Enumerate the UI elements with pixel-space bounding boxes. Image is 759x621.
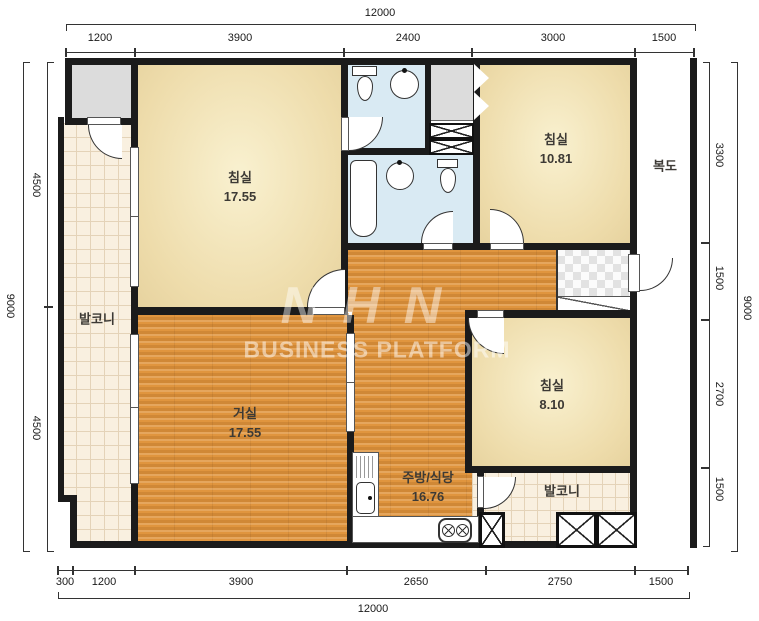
dim-top-seg-4: 1500 bbox=[652, 32, 676, 44]
dim-line-top-segments bbox=[66, 52, 694, 53]
door-frame-entry bbox=[628, 254, 640, 292]
dim-left-total: 9000 bbox=[4, 294, 16, 318]
tick bbox=[57, 566, 59, 575]
dim-right-total: 9000 bbox=[741, 296, 753, 320]
tick bbox=[471, 48, 473, 57]
storage-room bbox=[68, 62, 134, 120]
room-area: 10.81 bbox=[540, 150, 573, 169]
dim-top-seg-2: 2400 bbox=[396, 32, 420, 44]
wall-bedroom3-bottom bbox=[465, 466, 637, 473]
door-frame-storage-balcony bbox=[87, 117, 121, 125]
faucet-bath2 bbox=[397, 160, 402, 165]
watermark-subtitle: BUSINESS PLATFORM bbox=[243, 337, 510, 364]
dim-top-seg-3: 3000 bbox=[541, 32, 565, 44]
room-name: 침실 bbox=[224, 169, 257, 188]
stove-burner-left bbox=[442, 524, 455, 537]
window-bedroom1-b bbox=[130, 216, 139, 287]
bathtub-bath2 bbox=[350, 160, 377, 237]
kitchen-sink-drain bbox=[368, 496, 372, 500]
dim-top-seg-0: 1200 bbox=[88, 32, 112, 44]
label-living-room: 거실 17.55 bbox=[229, 405, 262, 443]
tick bbox=[701, 467, 710, 469]
label-bedroom-2: 침실 10.81 bbox=[540, 131, 573, 169]
label-bedroom-master: 침실 17.55 bbox=[224, 169, 257, 207]
room-name: 주방/식당 bbox=[402, 469, 453, 488]
tick bbox=[65, 48, 67, 57]
tick bbox=[346, 566, 348, 575]
tick bbox=[687, 566, 689, 575]
dim-top-total: 12000 bbox=[365, 7, 396, 19]
dim-line-top-total bbox=[66, 24, 696, 31]
label-balcony-left: 발코니 bbox=[79, 311, 115, 330]
tick bbox=[134, 566, 136, 575]
door-frame-bedroom2 bbox=[490, 243, 524, 250]
tick bbox=[701, 242, 710, 244]
room-area: 8.10 bbox=[539, 396, 564, 415]
window-living-b bbox=[130, 407, 139, 484]
wall-bedroom3-left bbox=[465, 310, 472, 473]
dim-line-bottom-total bbox=[58, 592, 690, 599]
room-name: 발코니 bbox=[544, 483, 580, 502]
wall-balcony-outer bbox=[58, 117, 64, 502]
room-name: 거실 bbox=[229, 405, 262, 424]
wall-kitchen-balcony-a bbox=[477, 466, 484, 476]
door-frame-bedroom3 bbox=[477, 310, 504, 318]
tick bbox=[634, 566, 636, 575]
label-kitchen: 주방/식당 16.76 bbox=[402, 469, 453, 507]
duct-box-a bbox=[429, 123, 474, 139]
room-area: 16.76 bbox=[402, 488, 453, 507]
wall-top bbox=[65, 58, 637, 65]
room-name: 발코니 bbox=[79, 311, 115, 330]
shaft-large-b bbox=[596, 512, 637, 548]
tick bbox=[72, 566, 74, 575]
room-name: 침실 bbox=[539, 377, 564, 396]
wall-hall-north bbox=[341, 243, 637, 250]
stove-burner-right bbox=[456, 524, 469, 537]
tick bbox=[343, 48, 345, 57]
dim-right-seg-0: 3300 bbox=[713, 143, 725, 167]
dish-rack bbox=[356, 456, 375, 478]
entry-floor-edge bbox=[556, 250, 558, 310]
wall-lower-left bbox=[70, 495, 77, 548]
dim-bottom-seg-3: 2650 bbox=[404, 576, 428, 588]
dim-bottom-seg-4: 2750 bbox=[548, 576, 572, 588]
watermark-logo: NHN bbox=[281, 276, 466, 336]
wall-storage-left bbox=[65, 58, 72, 125]
door-frame-kitchen-balcony bbox=[477, 476, 484, 508]
dim-bottom-seg-0: 300 bbox=[56, 576, 74, 588]
dim-bottom-total: 12000 bbox=[358, 603, 389, 615]
closet bbox=[429, 62, 475, 121]
door-frame-bathroom2 bbox=[423, 243, 453, 250]
duct-box-b bbox=[429, 139, 474, 155]
tick bbox=[634, 48, 636, 57]
dim-line-right-segments bbox=[703, 62, 710, 547]
kitchen-sink bbox=[356, 482, 375, 514]
tick bbox=[44, 306, 53, 308]
dim-top-seg-1: 3900 bbox=[228, 32, 252, 44]
tick bbox=[693, 48, 695, 57]
window-living-kitchen-b bbox=[346, 382, 355, 432]
faucet-bath1 bbox=[402, 68, 407, 73]
tick bbox=[485, 566, 487, 575]
shaft-small bbox=[479, 512, 505, 548]
room-area: 17.55 bbox=[224, 188, 257, 207]
window-living-a bbox=[130, 334, 139, 408]
label-bedroom-3: 침실 8.10 bbox=[539, 377, 564, 415]
window-bedroom1-a bbox=[130, 147, 139, 217]
balcony-left-floor bbox=[62, 123, 132, 541]
dim-line-right-total bbox=[731, 62, 738, 552]
floor-plan: 침실 17.55 침실 10.81 침실 8.10 거실 17.55 주방/식당… bbox=[0, 0, 759, 621]
room-name: 침실 bbox=[540, 131, 573, 150]
door-frame-bathroom1 bbox=[341, 117, 349, 151]
room-area: 17.55 bbox=[229, 424, 262, 443]
dim-line-left-total bbox=[23, 62, 30, 552]
toilet-tank-bath1 bbox=[352, 66, 377, 76]
tick bbox=[701, 319, 710, 321]
wall-storage-bottom-a bbox=[65, 118, 87, 125]
dim-right-seg-3: 1500 bbox=[713, 477, 725, 501]
label-balcony-right: 발코니 bbox=[544, 483, 580, 502]
room-name: 복도 bbox=[653, 158, 677, 177]
entry-floor bbox=[556, 247, 632, 297]
door-swing-entry bbox=[640, 258, 673, 291]
toilet-tank-bath2 bbox=[437, 159, 458, 168]
wall-right-unit bbox=[630, 58, 637, 548]
dim-right-seg-1: 1500 bbox=[713, 266, 725, 290]
dim-bottom-seg-5: 1500 bbox=[649, 576, 673, 588]
dim-line-bottom-segments bbox=[58, 570, 688, 571]
shaft-large-a bbox=[556, 512, 597, 548]
dim-right-seg-2: 2700 bbox=[713, 382, 725, 406]
dim-left-seg-0: 4500 bbox=[30, 173, 42, 197]
dim-bottom-seg-2: 3900 bbox=[229, 576, 253, 588]
wall-corridor-right bbox=[690, 58, 697, 548]
dim-bottom-seg-1: 1200 bbox=[92, 576, 116, 588]
sink-bath1 bbox=[390, 70, 419, 99]
label-corridor: 복도 bbox=[653, 158, 677, 177]
dim-left-seg-1: 4500 bbox=[30, 416, 42, 440]
sink-bath2 bbox=[386, 162, 414, 190]
tick bbox=[134, 48, 136, 57]
